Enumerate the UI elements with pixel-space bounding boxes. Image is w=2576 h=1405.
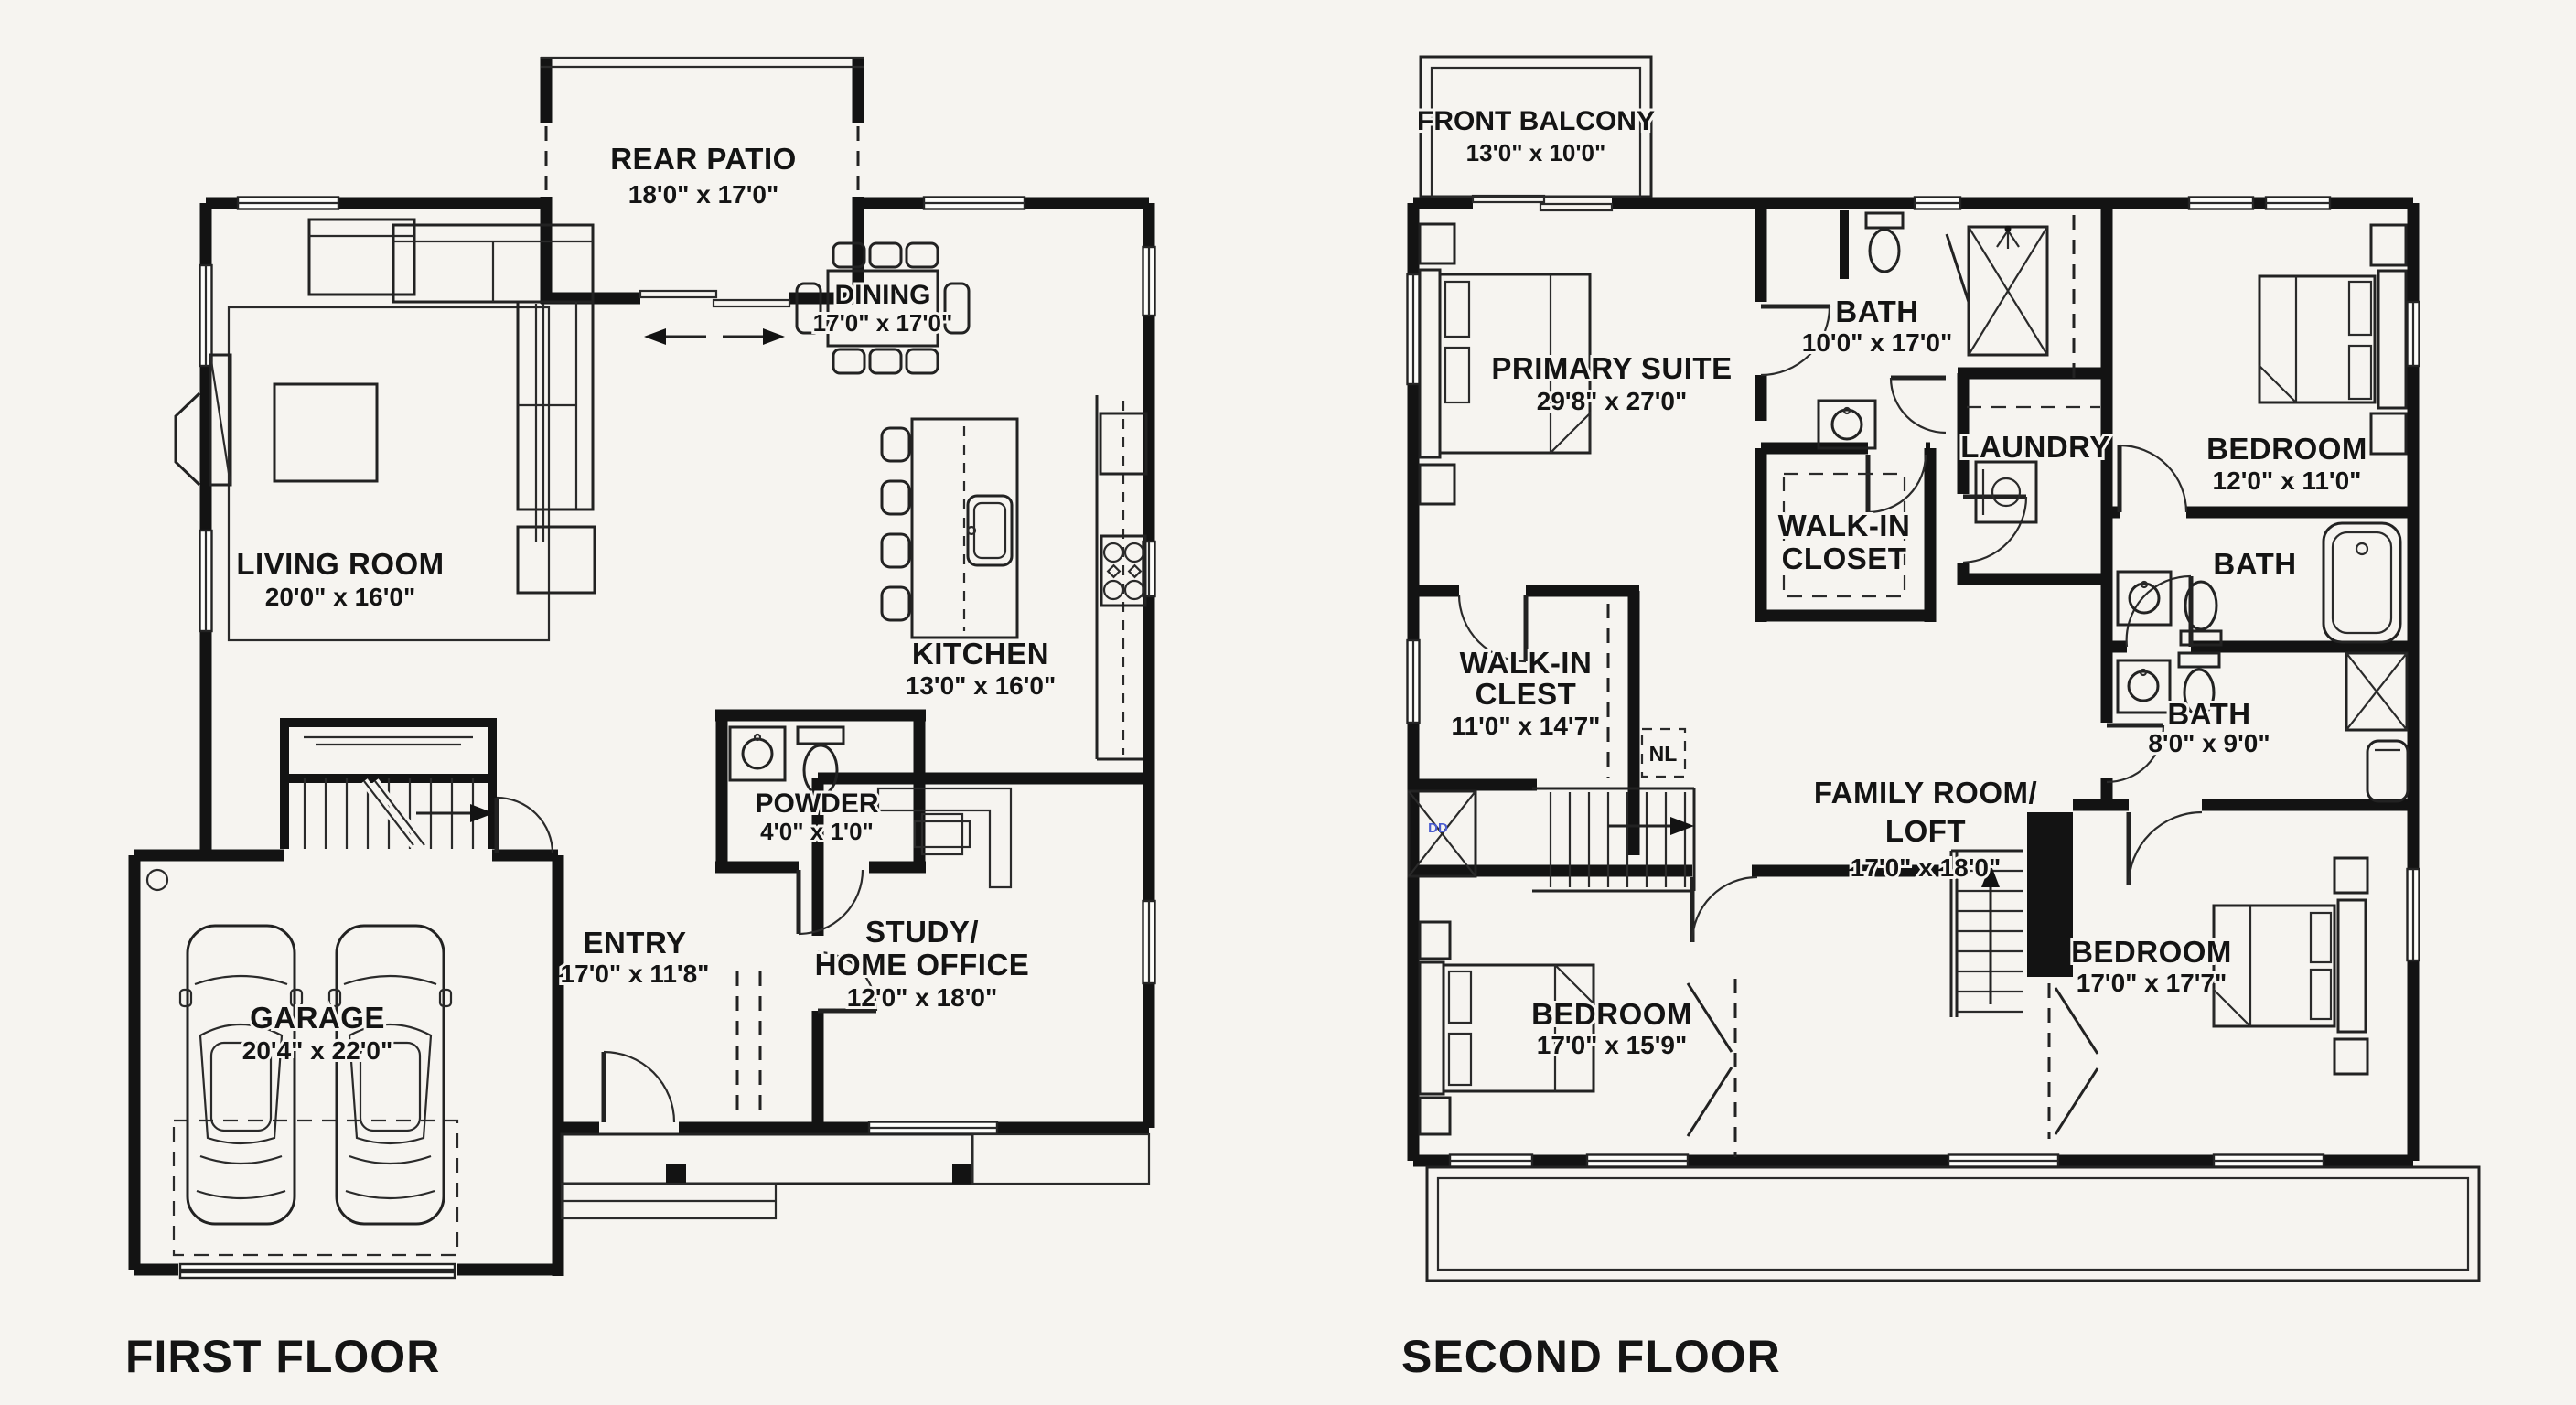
laundry-fixtures: [1967, 407, 2100, 522]
room-label-primary-suite: PRIMARY SUITE: [1491, 351, 1732, 385]
bedroom-lr-furniture: [2214, 858, 2367, 1074]
room-dims-primary-bath: 10'0" x 17'0": [1802, 328, 1952, 357]
stair-note-label: NL: [1649, 742, 1678, 766]
porch-steps: [562, 1134, 1149, 1218]
floorplan-drawing: REAR PATIO 18'0" x 17'0" DINING 17'0" x …: [0, 0, 2576, 1405]
room-label-rear-patio: REAR PATIO: [610, 142, 797, 176]
walk-in-closet-door: [1868, 455, 1926, 512]
front-door: [604, 1052, 674, 1122]
room-dims-entry: 17'0" x 11'8": [561, 960, 710, 988]
room-label-clest-1: WALK-IN: [1460, 646, 1593, 680]
entry-closet: [737, 971, 760, 1118]
room-dims-bedroom-lr: 17'0" x 17'7": [2077, 969, 2227, 997]
garage-door: [180, 1264, 455, 1278]
room-label-clest-2: CLEST: [1476, 677, 1577, 711]
bedroom-lr-door: [2129, 812, 2202, 885]
second-floor-plan: FRONT BALCONY 13'0" x 10'0" PRIMARY SUIT…: [1401, 57, 2479, 1382]
chase-note-label: DD: [1428, 820, 1448, 836]
laundry-door: [1963, 497, 2026, 563]
powder-door: [799, 870, 863, 934]
room-label-family-1: FAMILY ROOM/: [1814, 776, 2037, 810]
room-label-kitchen: KITCHEN: [912, 637, 1049, 670]
room-label-bedroom-ll: BEDROOM: [1531, 997, 1692, 1031]
room-dims-powder: 4'0" x 1'0": [760, 818, 874, 845]
room-dims-garage: 20'4" x 22'0": [242, 1036, 392, 1065]
first-floor-title: FIRST FLOOR: [125, 1331, 440, 1382]
bedroom-lr-closet: [2049, 983, 2098, 1139]
room-label-powder: POWDER: [756, 788, 879, 819]
room-dims-rear-patio: 18'0" x 17'0": [628, 180, 778, 209]
room-dims-dining: 17'0" x 17'0": [813, 309, 953, 337]
room-dims-family: 17'0" x 18'0": [1851, 853, 2001, 882]
room-dims-primary-suite: 29'8" x 27'0": [1537, 387, 1687, 415]
patio-slider-door: [640, 291, 789, 306]
room-label-study-1: STUDY/: [865, 915, 979, 949]
bedroom-ll-closet: [1688, 979, 1735, 1157]
room-label-living: LIVING ROOM: [236, 547, 444, 581]
room-label-entry: ENTRY: [583, 926, 686, 960]
bedroom-upper-furniture: [2259, 225, 2406, 454]
room-label-study-2: HOME OFFICE: [815, 948, 1030, 981]
room-label-wic-1: WALK-IN: [1778, 509, 1911, 542]
bedroom-ll-door: [1692, 877, 1757, 942]
room-label-balcony: FRONT BALCONY: [1417, 106, 1655, 136]
room-label-primary-bath: BATH: [1835, 295, 1918, 328]
bedroom-upper-door: [2120, 445, 2186, 512]
stair-hall-door: [497, 798, 553, 853]
first-floor-stairs: [304, 737, 494, 849]
kitchen-fixtures: [882, 395, 1146, 759]
hall-railing: [536, 304, 543, 542]
lower-roof-outline: [1427, 1167, 2479, 1281]
room-label-laundry: LAUNDRY: [1960, 430, 2110, 464]
floorplan-sheet: REAR PATIO 18'0" x 17'0" DINING 17'0" x …: [0, 0, 2576, 1405]
room-label-garage: GARAGE: [250, 1001, 385, 1035]
first-floor-plan: REAR PATIO 18'0" x 17'0" DINING 17'0" x …: [125, 57, 1155, 1382]
room-label-family-2: LOFT: [1885, 814, 1966, 848]
room-label-bath-middle: BATH: [2167, 697, 2250, 731]
slider-arrows: [644, 328, 785, 345]
room-label-bedroom-upper: BEDROOM: [2206, 432, 2367, 466]
second-floor-title: SECOND FLOOR: [1401, 1331, 1781, 1382]
room-dims-bedroom-ll: 17'0" x 15'9": [1537, 1031, 1687, 1059]
room-dims-living: 20'0" x 16'0": [265, 583, 415, 611]
hall-door: [1891, 378, 1946, 433]
room-dims-balcony: 13'0" x 10'0": [1466, 139, 1606, 166]
room-dims-bedroom-upper: 12'0" x 11'0": [2213, 467, 2362, 495]
room-label-wic-2: CLOSET: [1782, 542, 1907, 575]
room-dims-kitchen: 13'0" x 16'0": [906, 671, 1056, 700]
room-label-bath-upper: BATH: [2213, 547, 2296, 581]
room-label-dining: DINING: [835, 280, 931, 310]
room-label-bedroom-lr: BEDROOM: [2071, 935, 2232, 969]
second-floor-labels: FRONT BALCONY 13'0" x 10'0" PRIMARY SUIT…: [1401, 106, 2367, 1382]
room-dims-bath-middle: 8'0" x 9'0": [2148, 729, 2270, 757]
room-dims-study: 12'0" x 18'0": [847, 983, 997, 1012]
room-dims-clest: 11'0" x 14'7": [1452, 712, 1601, 740]
powder-fixtures: [730, 727, 843, 795]
